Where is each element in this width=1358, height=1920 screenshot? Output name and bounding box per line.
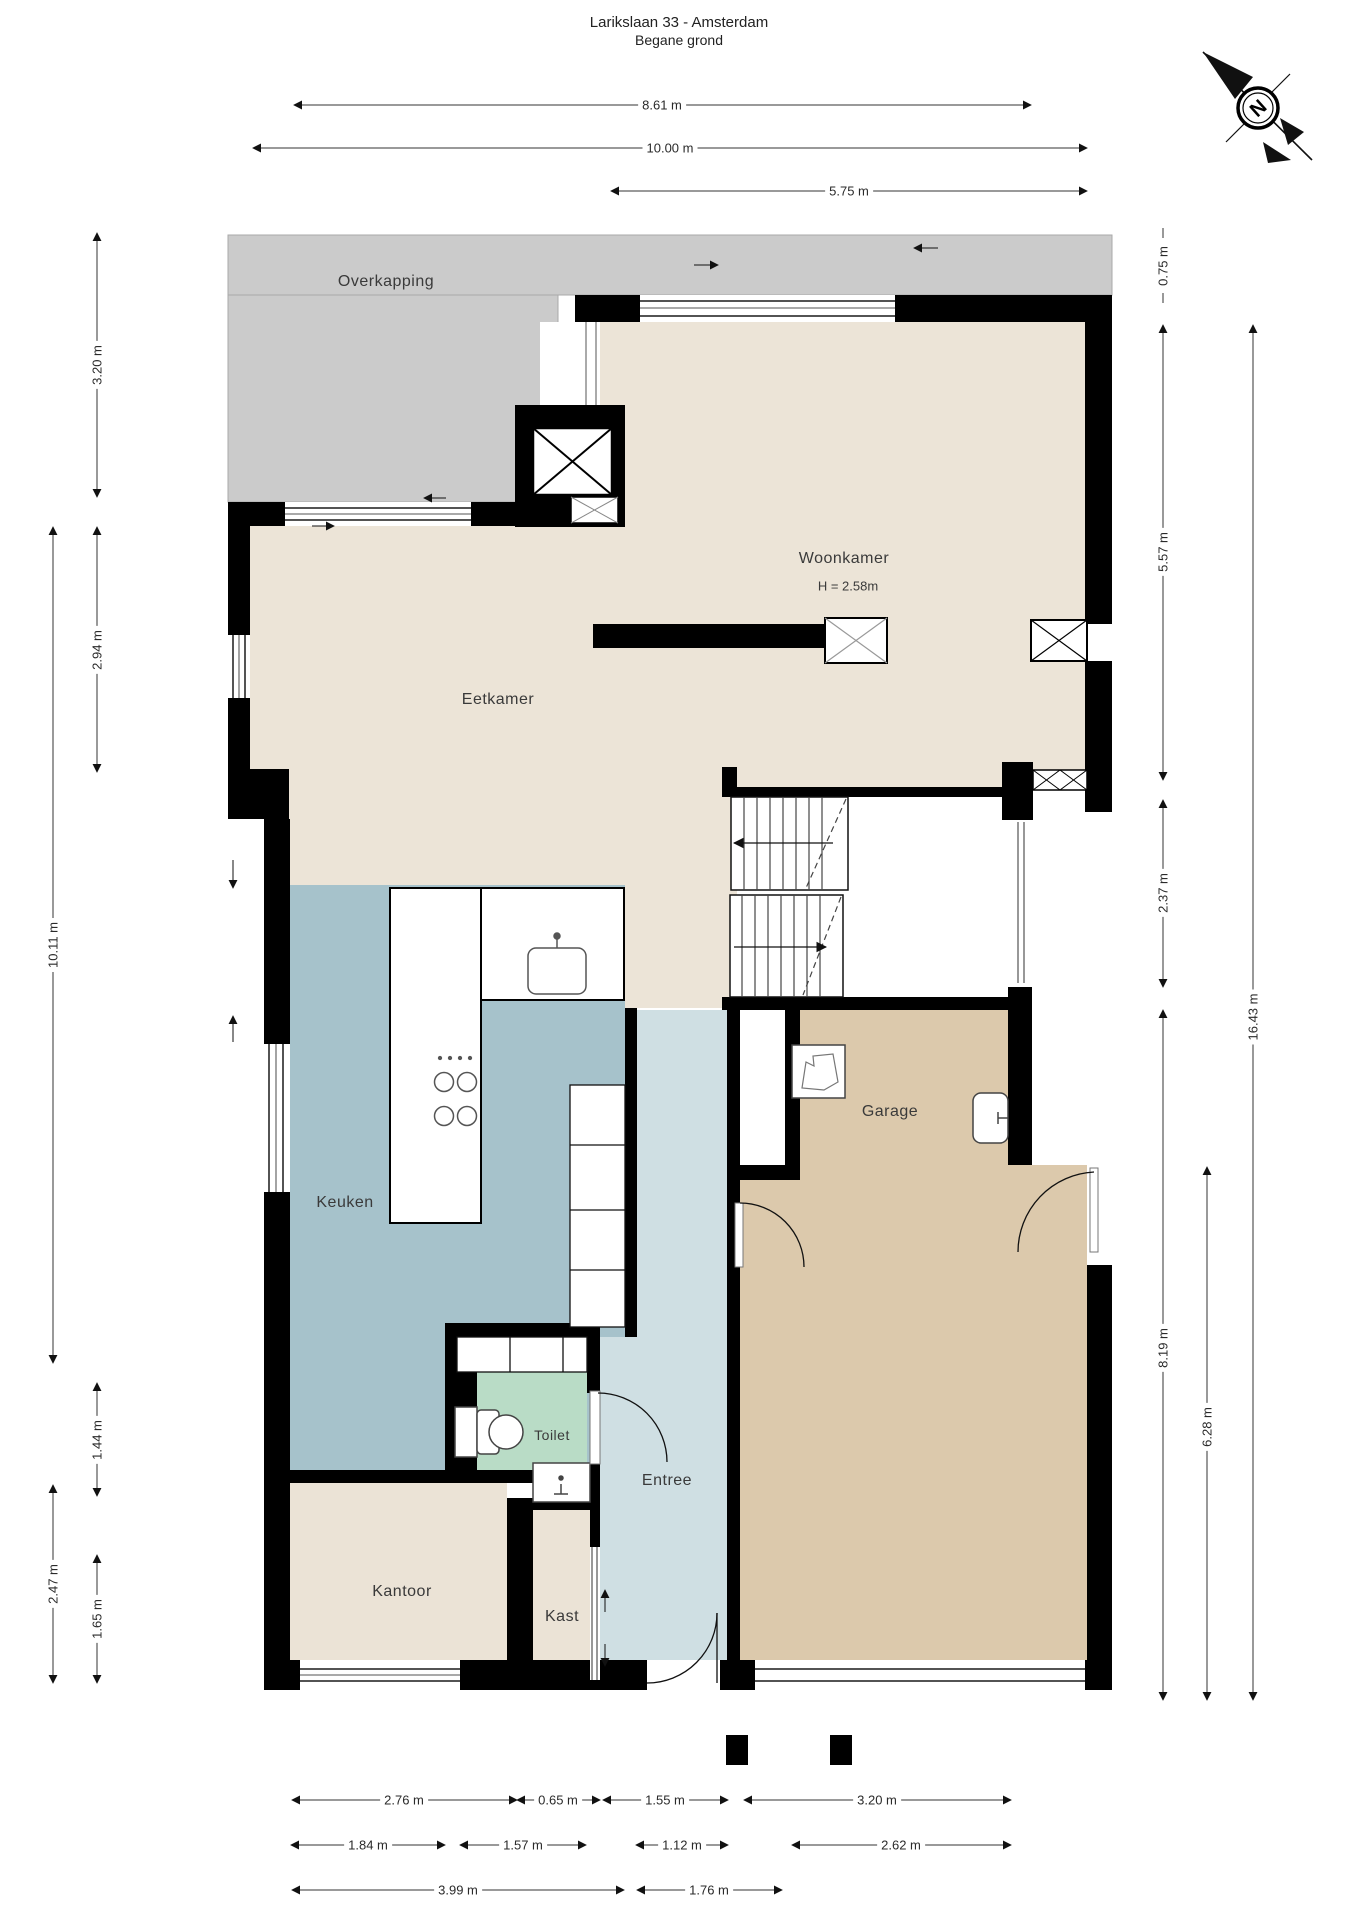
dim-left-1-65: 1.65 m: [90, 1595, 105, 1643]
room-label-kantoor: Kantoor: [372, 1583, 432, 1601]
floorplan-drawing: N: [0, 0, 1358, 1920]
dim-right-16-43: 16.43 m: [1246, 990, 1261, 1045]
room-label-kast: Kast: [545, 1608, 579, 1626]
dim-bottom1-0-65: 0.65 m: [534, 1793, 582, 1808]
room-label-toilet: Toilet: [534, 1427, 570, 1443]
dim-bottom2-1-57: 1.57 m: [499, 1838, 547, 1853]
room-label-entree: Entree: [642, 1472, 692, 1490]
dim-right-0-75: 0.75 m: [1156, 242, 1171, 290]
floorplan-page: N Larikslaan 33 - Amsterdam Begane grond…: [0, 0, 1358, 1920]
dim-right-5-57: 5.57 m: [1156, 528, 1171, 576]
dim-top-5-75: 5.75 m: [825, 184, 873, 199]
dim-left-2-94: 2.94 m: [90, 626, 105, 674]
room-height-note: H = 2.58m: [818, 579, 878, 594]
dim-bottom1-3-20: 3.20 m: [853, 1793, 901, 1808]
dim-top-8-61: 8.61 m: [638, 98, 686, 113]
dim-bottom2-2-62: 2.62 m: [877, 1838, 925, 1853]
room-label-garage: Garage: [862, 1103, 918, 1121]
dim-left-10-11: 10.11 m: [46, 918, 61, 972]
plan-title: Larikslaan 33 - Amsterdam Begane grond: [0, 14, 1358, 49]
dim-right-2-37: 2.37 m: [1156, 869, 1171, 917]
dim-left-2-47: 2.47 m: [46, 1560, 61, 1608]
dim-left-3-20: 3.20 m: [90, 341, 105, 389]
dim-bottom2-1-84: 1.84 m: [344, 1838, 392, 1853]
dim-bottom1-1-55: 1.55 m: [641, 1793, 689, 1808]
dim-bottom3-3-99: 3.99 m: [434, 1883, 482, 1898]
room-label-overkapping: Overkapping: [338, 273, 434, 291]
garage-sink: [973, 1093, 1008, 1143]
dim-bottom3-1-76: 1.76 m: [685, 1883, 733, 1898]
dim-right-6-28: 6.28 m: [1200, 1403, 1215, 1451]
room-label-woonkamer: Woonkamer: [799, 550, 889, 568]
entree-basin: [533, 1463, 590, 1502]
room-label-keuken: Keuken: [316, 1194, 373, 1212]
dim-bottom1-2-76: 2.76 m: [380, 1793, 428, 1808]
dim-right-8-19: 8.19 m: [1156, 1324, 1171, 1372]
garage-heater: [792, 1045, 845, 1098]
staircase: [730, 797, 848, 997]
dim-left-1-44: 1.44 m: [90, 1416, 105, 1464]
dim-bottom2-1-12: 1.12 m: [658, 1838, 706, 1853]
plan-title-floor: Begane grond: [0, 32, 1358, 49]
dim-top-10-00: 10.00 m: [643, 141, 698, 156]
room-label-eetkamer: Eetkamer: [462, 691, 534, 709]
compass-north-icon: N: [1203, 52, 1312, 163]
plan-title-address: Larikslaan 33 - Amsterdam: [0, 14, 1358, 32]
